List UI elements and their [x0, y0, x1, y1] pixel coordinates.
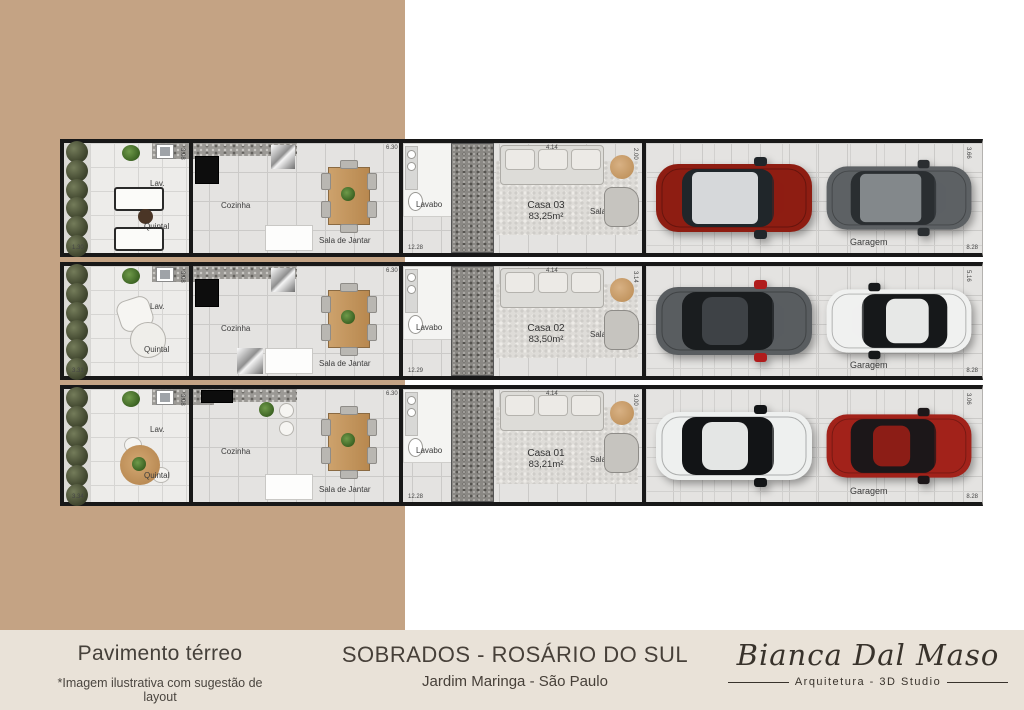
dining-chair [367, 419, 377, 436]
dim-label: 3.08 [179, 271, 185, 283]
fridge-icon [271, 145, 295, 169]
centerpiece-plant-icon [341, 433, 355, 447]
dim-label: 12.28 [408, 245, 423, 251]
sala-area: Casa 0283,50m²Sala [492, 266, 642, 376]
dim-label: 8.28 [966, 368, 978, 374]
logo-tagline: Arquitetura - 3D Studio [795, 676, 941, 688]
page-title: Pavimento térreo [40, 642, 280, 666]
dim-label: 1.30 [72, 245, 84, 251]
cooktop-icon [201, 390, 233, 403]
dining-chair [340, 406, 358, 415]
plant-icon [259, 402, 274, 417]
cabinet-steel [237, 348, 263, 374]
dining-chair [367, 173, 377, 190]
project-title: SOBRADOS - ROSÁRIO DO SUL [330, 642, 700, 668]
dining-chair [321, 419, 331, 436]
footer-bar: Pavimento térreo *Imagem ilustrativa com… [0, 630, 1024, 710]
side-table [610, 155, 634, 179]
casa-area: 83,21m² [510, 459, 582, 470]
quintal-area: Lav.Quintal [90, 266, 189, 376]
logo-rule-right [947, 682, 1008, 683]
unit-row-casa-03: Lav.Quintal3.08CozinhaSala de JantarLava… [60, 139, 983, 257]
sink-icon [407, 273, 416, 282]
stove-icon [195, 279, 219, 307]
sofa-icon [500, 145, 604, 185]
fridge-icon [271, 268, 295, 292]
dining-chair [340, 283, 358, 292]
garagem-label: Garagem [850, 237, 888, 247]
casa-area: 83,25m² [510, 211, 582, 222]
dim-label: 3.14 [632, 271, 638, 283]
lavabo-room: Lavabo [403, 266, 452, 340]
lav-label: Lav. [150, 302, 165, 311]
washer-icon [156, 390, 174, 405]
dining-area: Sala de Jantar [297, 143, 399, 253]
dining-chair [321, 296, 331, 313]
logo-name: Bianca Dal Maso [728, 638, 1008, 672]
lavabo-label: Lavabo [416, 323, 442, 332]
car-icon [824, 407, 974, 490]
logo-tagline-row: Arquitetura - 3D Studio [728, 676, 1008, 688]
lavabo-label: Lavabo [416, 446, 442, 455]
unit-row-casa-01: Lav.Quintal3.08CozinhaSala de JantarLava… [60, 385, 983, 506]
disclaimer-note: *Imagem ilustrativa com sugestão de layo… [40, 676, 280, 704]
dim-label: 3.31 [72, 368, 84, 374]
casa-name: Casa 02 [510, 323, 582, 334]
cozinha-area: Cozinha [193, 389, 297, 502]
cozinha-area: Cozinha [193, 266, 297, 376]
armchair-icon [604, 187, 639, 227]
lavabo-label: Lavabo [416, 200, 442, 209]
bush-icon [122, 391, 140, 407]
car-icon [654, 279, 814, 368]
lav-label: Lav. [150, 179, 165, 188]
dim-label: 6.30 [386, 145, 398, 151]
cozinha-area: Cozinha [193, 143, 297, 253]
dining-chair [340, 347, 358, 356]
dining-chair [321, 324, 331, 341]
dining-chair [367, 201, 377, 218]
dim-label: 8.28 [966, 494, 978, 500]
casa-name: Casa 01 [510, 448, 582, 459]
cozinha-label: Cozinha [221, 324, 250, 333]
lavabo-room: Lavabo [403, 389, 452, 463]
quintal-label: Quintal [144, 222, 169, 231]
stairs-hatch [451, 266, 494, 376]
lavabo-room: Lavabo [403, 143, 452, 217]
dim-label: 12.29 [408, 368, 423, 374]
dim-label: 5.16 [965, 270, 971, 282]
garage-area: Garagem8.283.06 [646, 389, 982, 502]
dim-label: 4.14 [546, 145, 558, 151]
studio-logo: Bianca Dal Maso Arquitetura - 3D Studio [728, 638, 1008, 688]
stool [279, 403, 294, 418]
dining-area: Sala de Jantar [297, 266, 399, 376]
dining-chair [321, 201, 331, 218]
dining-chair [367, 447, 377, 464]
sofa-icon [500, 268, 604, 308]
dining-area: Sala de Jantar [297, 389, 399, 502]
dining-chair [367, 296, 377, 313]
floor-plans: Lav.Quintal3.08CozinhaSala de JantarLava… [60, 139, 983, 509]
project-title-block: SOBRADOS - ROSÁRIO DO SUL Jardim Maringa… [330, 642, 700, 690]
sink-icon [407, 162, 416, 171]
sun-lounger [114, 187, 164, 211]
dim-label: 6.30 [386, 268, 398, 274]
dining-chair [321, 447, 331, 464]
unit-row-casa-02: Lav.Quintal3.08CozinhaSala de JantarLava… [60, 262, 983, 380]
dim-label: 3.06 [965, 393, 971, 405]
casa-area: 83,50m² [510, 334, 582, 345]
dim-label: 2.00 [632, 148, 638, 160]
sala-jantar-label: Sala de Jantar [319, 359, 371, 368]
dining-chair [367, 324, 377, 341]
dim-label: 8.28 [966, 245, 978, 251]
sink-icon [407, 285, 416, 294]
lav-label: Lav. [150, 425, 165, 434]
casa-tag: Casa 0383,25m² [510, 200, 582, 222]
stool [279, 421, 294, 436]
casa-name: Casa 03 [510, 200, 582, 211]
project-location: Jardim Maringa - São Paulo [330, 673, 700, 690]
table-plant-icon [132, 457, 146, 471]
sala-jantar-label: Sala de Jantar [319, 236, 371, 245]
car-icon [654, 404, 814, 493]
bush-icon [122, 268, 140, 284]
dim-label: 12.28 [408, 494, 423, 500]
casa-tag: Casa 0283,50m² [510, 323, 582, 345]
garage-area: Garagem8.283.66 [646, 143, 982, 253]
dining-chair [340, 224, 358, 233]
dining-chair [340, 160, 358, 169]
quintal-area: Lav.Quintal [90, 389, 189, 502]
dim-label: 3.66 [965, 147, 971, 159]
dim-label: 3.34 [72, 494, 84, 500]
cozinha-label: Cozinha [221, 447, 250, 456]
dim-label: 3.08 [179, 394, 185, 406]
garden-strip [64, 389, 90, 502]
sink-icon [407, 150, 416, 159]
dining-chair [340, 470, 358, 479]
car-icon [824, 159, 974, 242]
dim-label: 3.00 [632, 394, 638, 406]
cozinha-label: Cozinha [221, 201, 250, 210]
garagem-label: Garagem [850, 360, 888, 370]
side-table [610, 401, 634, 425]
sala-area: Casa 0183,21m²Sala [492, 389, 642, 502]
side-table [610, 278, 634, 302]
centerpiece-plant-icon [341, 187, 355, 201]
washer-icon [156, 144, 174, 159]
page: { "colors": { "backdrop_tan": "#c4a384",… [0, 0, 1024, 710]
sink-icon [407, 396, 416, 405]
dim-label: 4.14 [546, 268, 558, 274]
casa-tag: Casa 0183,21m² [510, 448, 582, 470]
stove-icon [195, 156, 219, 184]
armchair-icon [604, 433, 639, 473]
centerpiece-plant-icon [341, 310, 355, 324]
sala-jantar-label: Sala de Jantar [319, 485, 371, 494]
dim-label: 3.08 [179, 148, 185, 160]
dim-label: 4.14 [546, 391, 558, 397]
quintal-label: Quintal [144, 471, 169, 480]
washer-icon [156, 267, 174, 282]
logo-rule-left [728, 682, 789, 683]
garden-strip [64, 266, 90, 376]
dim-label: 6.30 [386, 391, 398, 397]
garage-area: Garagem8.285.16 [646, 266, 982, 376]
sala-area: Casa 0383,25m²Sala [492, 143, 642, 253]
tree-icon [66, 445, 88, 467]
stairs-hatch [451, 143, 494, 253]
quintal-label: Quintal [144, 345, 169, 354]
garden-strip [64, 143, 90, 253]
sink-icon [407, 408, 416, 417]
car-icon [654, 156, 814, 245]
armchair-icon [604, 310, 639, 350]
car-icon [824, 282, 974, 365]
sofa-icon [500, 391, 604, 431]
quintal-area: Lav.Quintal [90, 143, 189, 253]
stairs-hatch [451, 389, 494, 502]
garagem-label: Garagem [850, 486, 888, 496]
footer-left-block: Pavimento térreo *Imagem ilustrativa com… [40, 642, 280, 704]
bush-icon [122, 145, 140, 161]
dining-chair [321, 173, 331, 190]
